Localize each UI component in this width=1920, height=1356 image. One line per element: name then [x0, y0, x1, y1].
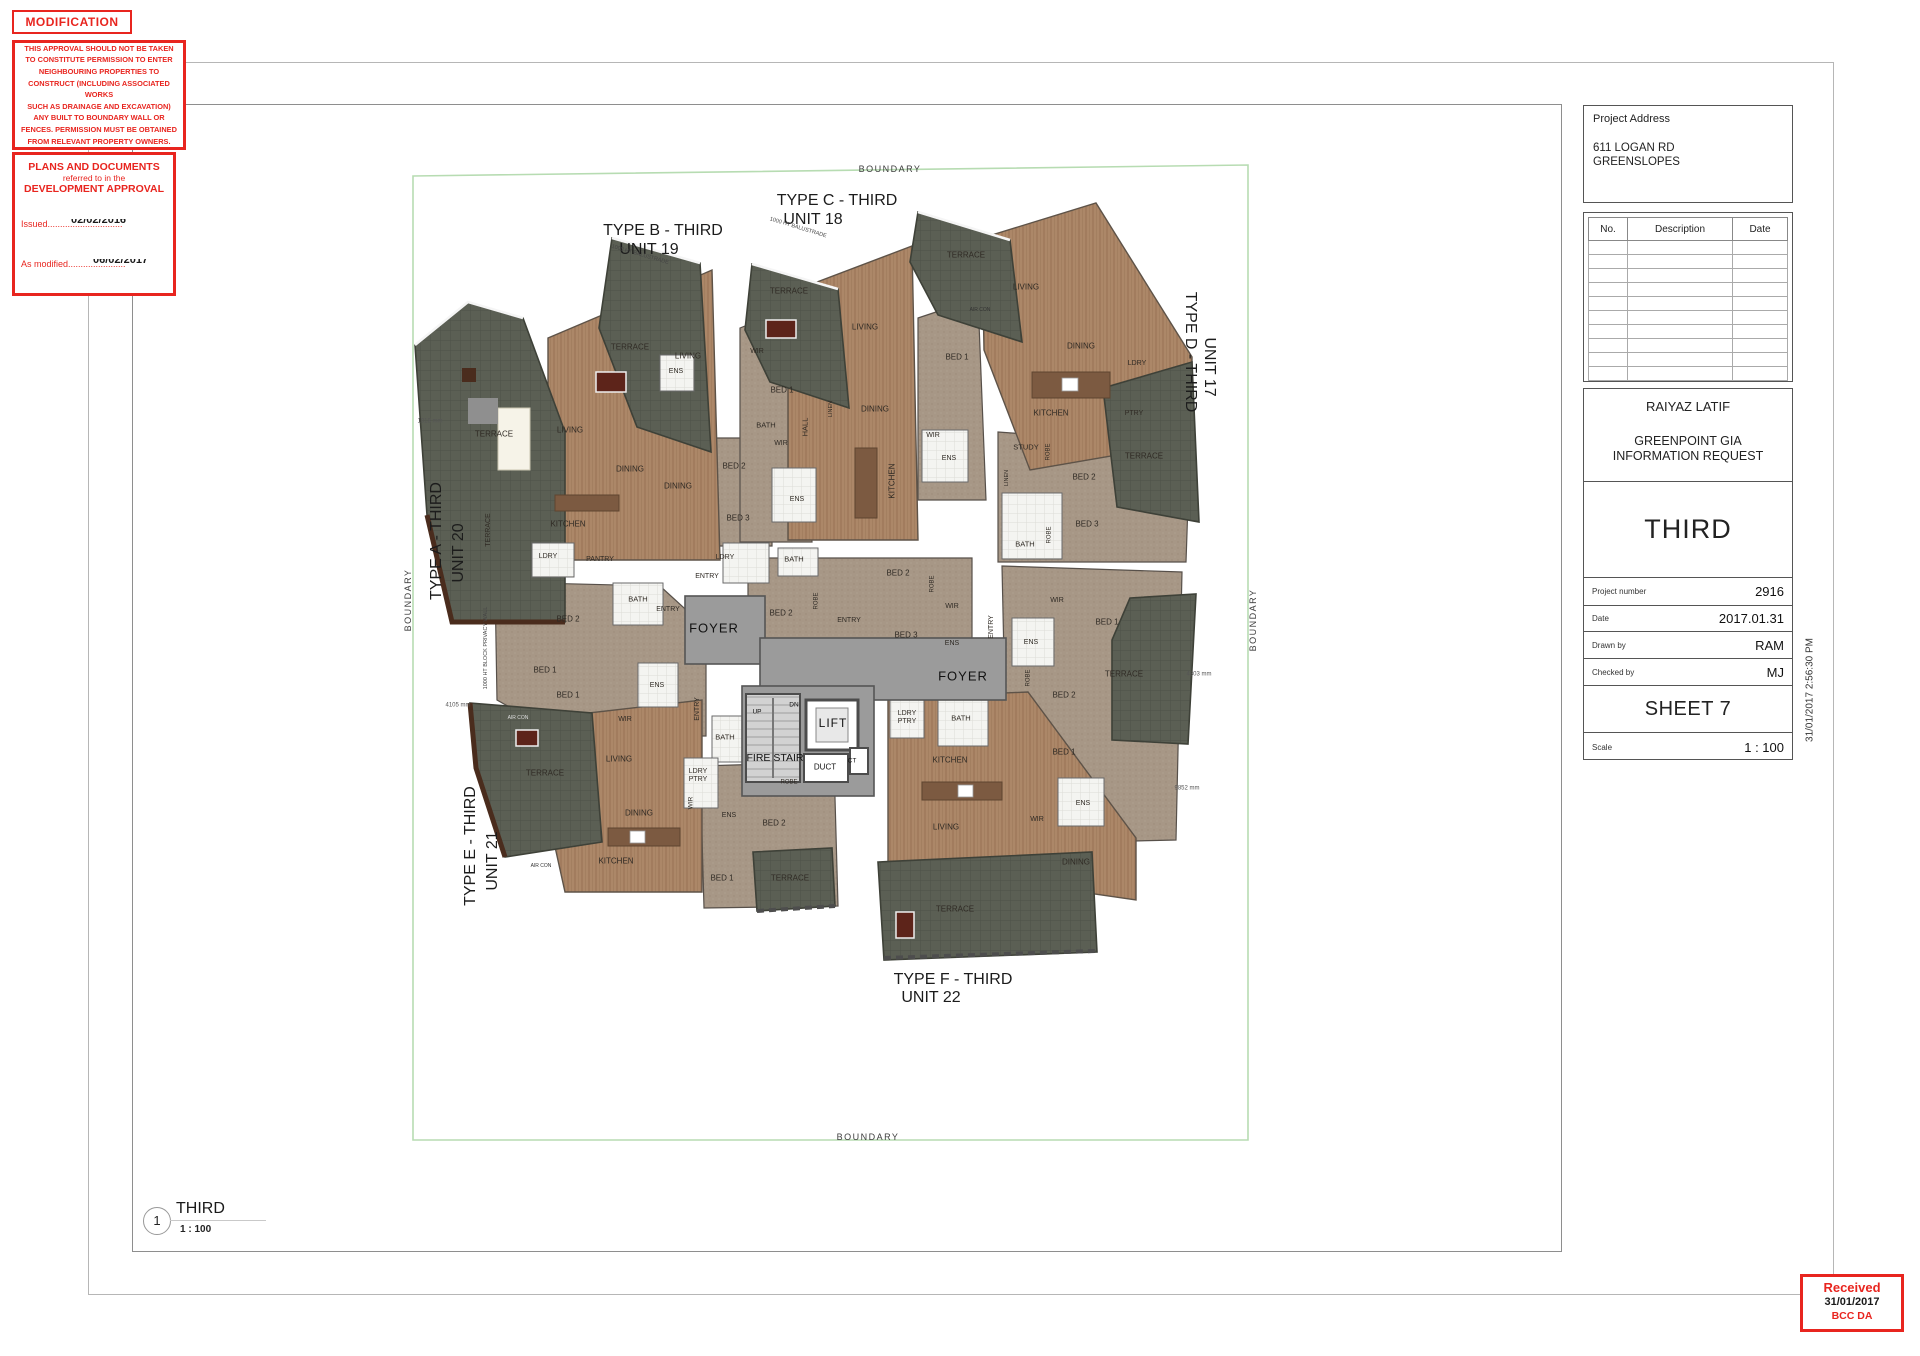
- rev-col-date: Date: [1733, 218, 1788, 241]
- issued-row: Issued.............................. 02/…: [21, 219, 167, 229]
- revision-empty-row: [1589, 353, 1788, 367]
- drawn-by-value: RAM: [1755, 638, 1784, 653]
- received-label: Received: [1803, 1280, 1901, 1295]
- revision-empty-row: [1589, 283, 1788, 297]
- rev-col-no: No.: [1589, 218, 1628, 241]
- issued-date: 02/02/2016: [71, 219, 126, 226]
- scale-value: 1 : 100: [1744, 740, 1784, 755]
- project-number-row: Project number 2916: [1584, 578, 1792, 606]
- project-address-line1: 611 LOGAN RD: [1593, 141, 1783, 155]
- project-name: GREENPOINT GIA INFORMATION REQUEST: [1584, 434, 1792, 464]
- project-address-box: Project Address 611 LOGAN RD GREENSLOPES: [1583, 105, 1793, 203]
- checked-by-row: Checked by MJ: [1584, 659, 1792, 686]
- revision-empty-row: [1589, 297, 1788, 311]
- received-date: 31/01/2017: [1803, 1296, 1901, 1308]
- revision-empty-row: [1589, 367, 1788, 381]
- author-section: RAIYAZ LATIF GREENPOINT GIA INFORMATION …: [1584, 389, 1792, 482]
- revision-table-box: No. Description Date: [1583, 212, 1793, 382]
- scale-row: Scale 1 : 100: [1584, 733, 1792, 761]
- project-address-line2: GREENSLOPES: [1593, 155, 1783, 169]
- development-approval-line: DEVELOPMENT APPROVAL: [15, 183, 173, 195]
- revision-empty-row: [1589, 241, 1788, 255]
- stamp-text-line: FENCES. PERMISSION MUST BE OBTAINED: [15, 124, 183, 136]
- sheet-title: THIRD: [1584, 482, 1792, 578]
- revision-table: No. Description Date: [1588, 217, 1788, 381]
- stamp-text-line: THIS APPROVAL SHOULD NOT BE TAKEN: [15, 43, 183, 55]
- modification-stamp: MODIFICATION: [12, 10, 132, 34]
- stamp-text-line: TO CONSTITUTE PERMISSION TO ENTER: [15, 54, 183, 66]
- modified-row: As modified....................... 06/02…: [21, 259, 167, 269]
- revision-empty-row: [1589, 311, 1788, 325]
- drawn-by-row: Drawn by RAM: [1584, 632, 1792, 659]
- stamp-text-line: CONSTRUCT (INCLUDING ASSOCIATED WORKS: [15, 78, 183, 101]
- stamp-text-line: SUCH AS DRAINAGE AND EXCAVATION): [15, 101, 183, 113]
- print-timestamp: 31/01/2017 2:56:30 PM: [1805, 638, 1816, 742]
- lift-car: [816, 708, 848, 742]
- ct-cupboard: [850, 748, 868, 774]
- rev-col-description: Description: [1628, 218, 1733, 241]
- title-block-main: RAIYAZ LATIF GREENPOINT GIA INFORMATION …: [1583, 388, 1793, 760]
- referred-line: referred to in the: [15, 173, 173, 183]
- stamp-text-line: ANY BUILT TO BOUNDARY WALL OR: [15, 112, 183, 124]
- duct: [804, 754, 848, 782]
- plans-documents-line: PLANS AND DOCUMENTS: [15, 161, 173, 173]
- checked-by-value: MJ: [1767, 665, 1784, 680]
- date-value: 2017.01.31: [1719, 611, 1784, 626]
- revision-empty-row: [1589, 269, 1788, 283]
- received-stamp: Received 31/01/2017 BCC DA: [1800, 1274, 1904, 1332]
- project-number-value: 2916: [1755, 584, 1784, 599]
- stamp-text-line: FROM RELEVANT PROPERTY OWNERS.: [15, 136, 183, 148]
- project-address-label: Project Address: [1593, 113, 1783, 125]
- development-approval-stamp: PLANS AND DOCUMENTS referred to in the D…: [12, 152, 176, 296]
- revision-empty-row: [1589, 325, 1788, 339]
- sheet-number: SHEET 7: [1584, 686, 1792, 733]
- revision-empty-row: [1589, 339, 1788, 353]
- revision-empty-row: [1589, 255, 1788, 269]
- stamp-text-line: NEIGHBOURING PROPERTIES TO: [15, 66, 183, 78]
- modified-date: 06/02/2017: [93, 259, 148, 266]
- received-authority: BCC DA: [1803, 1310, 1901, 1322]
- author-name: RAIYAZ LATIF: [1584, 399, 1792, 414]
- approval-note-stamp: THIS APPROVAL SHOULD NOT BE TAKENTO CONS…: [12, 40, 186, 150]
- date-row: Date 2017.01.31: [1584, 606, 1792, 632]
